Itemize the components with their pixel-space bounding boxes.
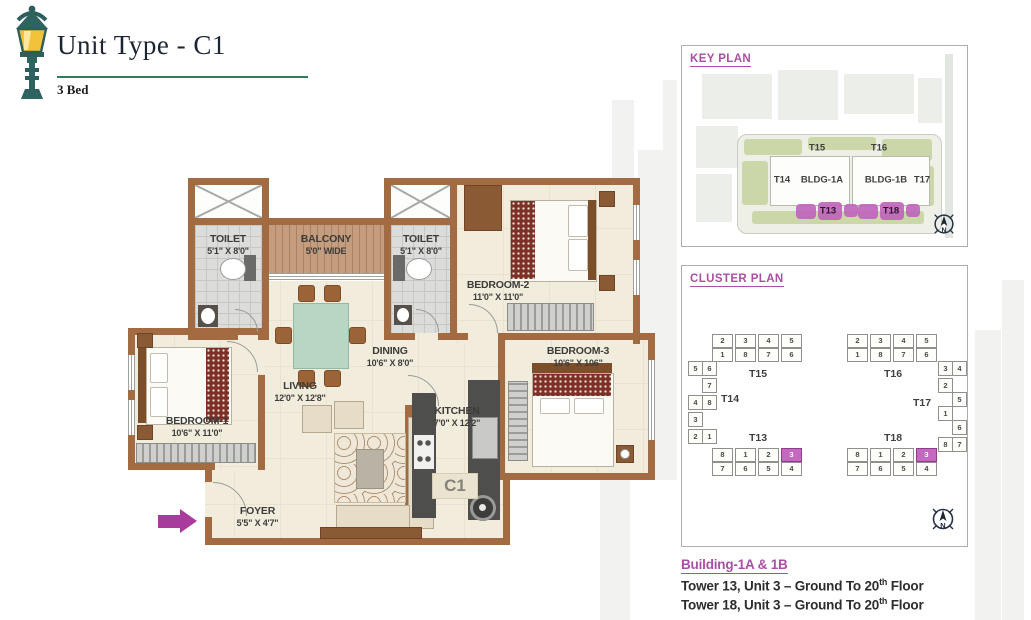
unit-row: 8123 bbox=[712, 448, 802, 462]
unit-cell: 8 bbox=[712, 448, 733, 462]
unit-cell: 4 bbox=[916, 462, 937, 476]
skyline-watermark bbox=[975, 330, 1001, 620]
bed-throw bbox=[533, 374, 611, 396]
nightstand bbox=[599, 275, 615, 291]
highlight-tower-18 bbox=[858, 204, 878, 219]
unit-cell: 2 bbox=[758, 448, 779, 462]
unit-cell: 4 bbox=[758, 334, 779, 348]
skyline-watermark bbox=[1002, 280, 1024, 620]
headboard bbox=[588, 200, 596, 280]
room-label-bedroom-3: BEDROOM-310'6" X 106" bbox=[518, 345, 638, 368]
ghost-building bbox=[918, 78, 942, 123]
tower-label-highlight: T18 bbox=[883, 206, 899, 217]
sofa bbox=[336, 505, 410, 529]
compass-icon: N bbox=[928, 504, 958, 534]
wall bbox=[384, 178, 391, 340]
wall bbox=[188, 178, 269, 185]
unit-row: 2345 bbox=[847, 334, 937, 348]
tower-label: T14 bbox=[774, 175, 790, 186]
room-label-toilet-2: TOILET5'1" X 8'0" bbox=[383, 233, 459, 256]
tower-label: T16 bbox=[871, 143, 887, 154]
room-label-balcony: BALCONY5'0" WIDE bbox=[276, 233, 376, 256]
cluster-plan-title: CLUSTER PLAN bbox=[690, 273, 784, 287]
dining-chair bbox=[298, 285, 315, 302]
unit-row: 7654 bbox=[712, 462, 802, 476]
title-divider bbox=[57, 76, 308, 78]
armchair bbox=[302, 405, 332, 433]
unit-cell: 5 bbox=[916, 334, 937, 348]
wall bbox=[500, 473, 655, 480]
building-caption: Building-1A & 1B bbox=[681, 557, 788, 574]
highlight-tower-13 bbox=[796, 204, 816, 219]
unit-cell: 3 bbox=[688, 412, 703, 427]
unit-cell: 1 bbox=[847, 348, 868, 362]
tower-label: T13 bbox=[749, 432, 767, 444]
room-label-kitchen: KITCHEN7'0" X 12'2" bbox=[421, 405, 493, 428]
stove bbox=[414, 435, 434, 469]
toilet-bowl bbox=[220, 258, 246, 280]
wall bbox=[188, 218, 457, 225]
pillow bbox=[568, 239, 588, 271]
wall bbox=[188, 178, 195, 340]
unit-row: 1876 bbox=[847, 348, 937, 362]
tower-label: T16 bbox=[884, 368, 902, 380]
wash-basin bbox=[198, 305, 218, 327]
street-lamp-icon bbox=[6, 2, 58, 102]
unit-cell: 7 bbox=[952, 437, 967, 452]
svg-text:N: N bbox=[941, 227, 946, 234]
tower-label: T17 bbox=[914, 175, 930, 186]
duct-shaft bbox=[391, 185, 450, 218]
unit-cell: 2 bbox=[893, 448, 914, 462]
unit-cell: 4 bbox=[781, 462, 802, 476]
window bbox=[633, 205, 640, 240]
compass-icon: N bbox=[930, 210, 958, 238]
cluster-plan-panel: CLUSTER PLAN 2345 1876 T15 5 6 7 4 8 3 2… bbox=[681, 265, 968, 547]
floor-plan: TOILET5'1" X 8'0" BALCONY5'0" WIDE TOILE… bbox=[120, 165, 665, 565]
unit-cell: 3 bbox=[781, 448, 802, 462]
wall bbox=[438, 333, 468, 340]
landscape bbox=[742, 161, 768, 205]
unit-cell: 7 bbox=[847, 462, 868, 476]
svg-text:N: N bbox=[940, 521, 945, 530]
room-label-foyer: FOYER5'5" X 4'7" bbox=[215, 505, 300, 528]
pillow bbox=[150, 353, 168, 383]
toilet-cistern bbox=[393, 255, 405, 281]
exterior-gap bbox=[269, 182, 384, 218]
tower-label: T15 bbox=[809, 143, 825, 154]
table-lamp bbox=[620, 449, 630, 459]
unit-cell: 6 bbox=[702, 361, 717, 376]
unit-cell: 3 bbox=[938, 361, 953, 376]
nightstand bbox=[137, 333, 153, 348]
window bbox=[648, 360, 655, 440]
window bbox=[128, 355, 135, 390]
entrance-arrow bbox=[158, 515, 180, 528]
building-label: BLDG-1A bbox=[801, 175, 843, 186]
unit-cell: 1 bbox=[735, 448, 756, 462]
unit-row: 8123 bbox=[847, 448, 937, 462]
wash-basin bbox=[394, 305, 412, 325]
unit-cell: 6 bbox=[916, 348, 937, 362]
unit-cell: 6 bbox=[781, 348, 802, 362]
key-plan-panel: KEY PLAN T15 T16 T14 BLDG-1A BLDG-1B T17… bbox=[681, 45, 968, 247]
key-plan-title: KEY PLAN bbox=[690, 53, 751, 67]
dining-table bbox=[293, 303, 349, 369]
wall bbox=[205, 538, 510, 545]
wall bbox=[262, 178, 269, 340]
ghost-building bbox=[844, 74, 914, 114]
pillow bbox=[568, 205, 588, 237]
tower-label: T18 bbox=[884, 432, 902, 444]
bedroom3-wardrobe bbox=[508, 381, 528, 461]
unit-cell: 7 bbox=[712, 462, 733, 476]
tower-13-caption: Tower 13, Unit 3 – Ground To 20th Floor bbox=[681, 577, 924, 594]
tower-label: T15 bbox=[749, 368, 767, 380]
room-label-toilet-1: TOILET5'1" X 8'0" bbox=[190, 233, 266, 256]
room-label-dining: DINING10'6" X 8'0" bbox=[348, 345, 432, 368]
unit-row: 2345 bbox=[712, 334, 802, 348]
room-label-bedroom-2: BEDROOM-211'0" X 11'0" bbox=[438, 279, 558, 302]
tower-18-caption: Tower 18, Unit 3 – Ground To 20th Floor bbox=[681, 596, 924, 613]
unit-cell: 6 bbox=[952, 420, 967, 435]
landscape bbox=[744, 139, 802, 155]
wall bbox=[384, 333, 415, 340]
unit-cell: 1 bbox=[702, 429, 717, 444]
page-title: Unit Type - C1 bbox=[57, 30, 226, 61]
unit-cell: 1 bbox=[938, 406, 953, 421]
unit-cell: 2 bbox=[688, 429, 703, 444]
unit-cell: 4 bbox=[893, 334, 914, 348]
unit-cell: 5 bbox=[893, 462, 914, 476]
window bbox=[633, 260, 640, 295]
room-label-living: LIVING12'0" X 12'8" bbox=[250, 380, 350, 403]
unit-row: 1876 bbox=[712, 348, 802, 362]
balcony-sliding-door bbox=[269, 273, 384, 281]
unit-row: 7654 bbox=[847, 462, 937, 476]
page-subtitle: 3 Bed bbox=[57, 82, 88, 98]
pillow bbox=[574, 398, 604, 414]
dining-chair bbox=[349, 327, 366, 344]
wall bbox=[498, 333, 655, 340]
unit-cell: 4 bbox=[952, 361, 967, 376]
unit-cell: 5 bbox=[688, 361, 703, 376]
bedroom2-wardrobe bbox=[507, 303, 594, 331]
bed-throw bbox=[511, 201, 535, 279]
tower-label: T17 bbox=[913, 397, 931, 409]
wall bbox=[128, 463, 215, 470]
unit-cell: 8 bbox=[870, 348, 891, 362]
pillow bbox=[150, 387, 168, 417]
bed-throw bbox=[206, 348, 229, 422]
unit-type-floor-label: C1 bbox=[432, 473, 478, 499]
dining-chair bbox=[275, 327, 292, 344]
unit-cell: 1 bbox=[712, 348, 733, 362]
unit-cell: 5 bbox=[952, 392, 967, 407]
skyline-watermark bbox=[663, 80, 677, 480]
bedroom1-wardrobe bbox=[136, 443, 256, 463]
bedroom2-dresser bbox=[464, 185, 502, 231]
unit-cell: 2 bbox=[712, 334, 733, 348]
unit-cell: 7 bbox=[893, 348, 914, 362]
headboard bbox=[138, 347, 146, 423]
unit-cell: 8 bbox=[702, 395, 717, 410]
unit-cell: 2 bbox=[938, 378, 953, 393]
unit-cell: 5 bbox=[758, 462, 779, 476]
entrance-arrow-head bbox=[180, 509, 197, 533]
coffee-table bbox=[356, 449, 384, 489]
unit-cell: 2 bbox=[847, 334, 868, 348]
unit-cell: 3 bbox=[916, 448, 937, 462]
nightstand bbox=[599, 191, 615, 207]
room-label-bedroom-1: BEDROOM-110'6" X 11'0" bbox=[137, 415, 257, 438]
wall bbox=[128, 328, 135, 470]
brochure-page: Unit Type - C1 3 Bed bbox=[0, 0, 1031, 620]
unit-cell: 6 bbox=[870, 462, 891, 476]
unit-cell: 3 bbox=[735, 334, 756, 348]
exterior-gap bbox=[188, 470, 205, 546]
highlight-tower-18 bbox=[906, 204, 920, 217]
wall bbox=[503, 473, 510, 545]
unit-cell: 4 bbox=[688, 395, 703, 410]
unit-cell: 7 bbox=[758, 348, 779, 362]
armchair bbox=[334, 401, 364, 429]
ghost-building bbox=[696, 174, 732, 222]
duct-shaft bbox=[195, 185, 262, 218]
pillow bbox=[540, 398, 570, 414]
dining-chair bbox=[324, 285, 341, 302]
wall bbox=[205, 470, 212, 482]
unit-cell: 6 bbox=[735, 462, 756, 476]
ghost-building bbox=[696, 126, 738, 168]
unit-cell: 8 bbox=[847, 448, 868, 462]
unit-cell: 1 bbox=[870, 448, 891, 462]
ghost-building bbox=[702, 74, 772, 119]
unit-cell: 7 bbox=[702, 378, 717, 393]
unit-cell: 8 bbox=[735, 348, 756, 362]
tv-unit bbox=[320, 527, 422, 539]
building-label: BLDG-1B bbox=[865, 175, 907, 186]
wall bbox=[384, 178, 640, 185]
tower-label-highlight: T13 bbox=[820, 206, 836, 217]
highlight-tower-13 bbox=[844, 204, 858, 217]
wall bbox=[258, 328, 265, 340]
unit-cell: 8 bbox=[938, 437, 953, 452]
toilet-bowl bbox=[406, 258, 432, 280]
tower-label: T14 bbox=[721, 393, 739, 405]
unit-cell: 3 bbox=[870, 334, 891, 348]
wall bbox=[450, 178, 457, 340]
unit-cell: 5 bbox=[781, 334, 802, 348]
ghost-building bbox=[778, 70, 838, 120]
window bbox=[128, 400, 135, 435]
